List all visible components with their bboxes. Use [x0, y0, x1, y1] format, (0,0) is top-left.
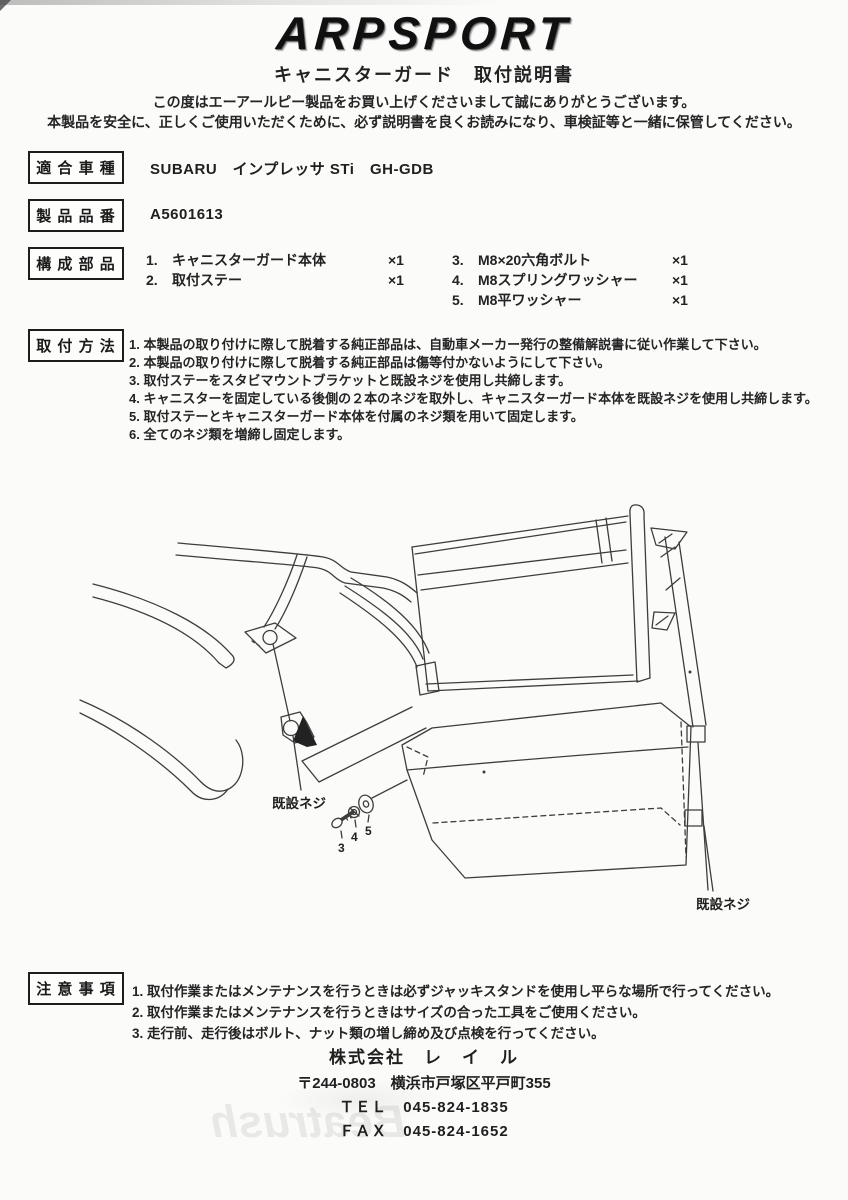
- component-item: 1. キャニスターガード本体 ×1: [146, 250, 404, 270]
- mount-to-stay-line: [273, 644, 290, 721]
- diagram-part-number-5: 5: [365, 824, 372, 838]
- caution-item: 3. 走行前、走行後はボルト、ナット類の増し締め及び点検を行ってください。: [132, 1023, 842, 1044]
- canister-right-strip-top: [630, 505, 644, 516]
- company-name: 株式会社 レ イ ル: [0, 1043, 848, 1068]
- component-name: M8×20六角ボルト: [478, 250, 672, 270]
- subframe-rail-line: [178, 543, 417, 593]
- component-item: 4. M8スプリングワッシャー ×1: [452, 270, 688, 290]
- stabi-mount-bracket: [245, 623, 296, 653]
- installation-step: 6. 全てのネジ類を増締し固定します。: [129, 426, 844, 444]
- diagram-part-number-4: 4: [351, 830, 358, 844]
- installation-step: 2. 本製品の取り付けに際して脱着する純正部品は傷等付かないようにして下さい。: [129, 354, 844, 372]
- stabi-mount-dash: [252, 641, 261, 647]
- section-label-part-number: 製 品 品 番: [28, 199, 124, 232]
- brand-logo: ARPSPORT: [0, 6, 848, 60]
- document-title: キャニスターガード 取付説明書: [0, 61, 848, 87]
- sway-bar-tube: [93, 597, 219, 663]
- vehicle-value: SUBARU インプレッサ STi GH-GDB: [150, 158, 434, 179]
- caution-item: 1. 取付作業またはメンテナンスを行うときは必ずジャッキスタンドを使用し平らな場…: [132, 981, 842, 1002]
- greeting-text: この度はエーアールピー製品をお買い上げくださいまして誠にありがとうございます。 …: [0, 92, 848, 132]
- canister-left-edge: [412, 547, 428, 691]
- section-label-cautions: 注 意 事 項: [28, 972, 124, 1005]
- sway-bar-tube-end: [219, 654, 234, 668]
- guard-dashed-line: [433, 808, 680, 825]
- greeting-line-2: 本製品を安全に、正しくご使用いただくために、必ず説明書を良くお読みになり、車検証…: [0, 112, 848, 132]
- part-number-value: A5601613: [150, 206, 223, 223]
- section-label-vehicle: 適 合 車 種: [28, 151, 124, 184]
- component-no: 2.: [146, 270, 172, 290]
- component-no: 4.: [452, 270, 478, 290]
- component-name: キャニスターガード本体: [172, 250, 388, 270]
- installation-step: 4. キャニスターを固定している後側の２本のネジを取外し、キャニスターガード本体…: [129, 390, 844, 408]
- number-tick: [368, 815, 369, 822]
- bracket-long-line: [665, 537, 693, 727]
- leader-line-left: [293, 736, 301, 790]
- hose-line: [340, 593, 417, 667]
- component-qty: ×1: [388, 250, 404, 270]
- canister-right-strip: [637, 678, 650, 682]
- hardware-leader-line: [372, 780, 407, 798]
- component-item: 3. M8×20六角ボルト ×1: [452, 250, 688, 270]
- caution-items: 1. 取付作業またはメンテナンスを行うときは必ずジャッキスタンドを使用し平らな場…: [132, 981, 842, 1044]
- component-qty: ×1: [672, 250, 688, 270]
- scan-edge-shadow: [0, 0, 500, 5]
- diagram-label-existing-screw-left: 既設ネジ: [272, 795, 326, 811]
- stay-bracket-wedge: [293, 716, 317, 747]
- number-tick: [341, 831, 342, 838]
- component-qty: ×1: [672, 270, 688, 290]
- canister-ear-top: [651, 528, 687, 549]
- caution-item: 2. 取付作業またはメンテナンスを行うときはサイズの合った工具をご使用ください。: [132, 1002, 842, 1023]
- number-tick: [355, 820, 356, 827]
- stray-dot: [483, 771, 486, 774]
- components-list-right: 3. M8×20六角ボルト ×1 4. M8スプリングワッシャー ×1 5. M…: [452, 250, 688, 310]
- component-no: 3.: [452, 250, 478, 270]
- components-list-left: 1. キャニスターガード本体 ×1 2. 取付ステー ×1: [146, 250, 404, 290]
- component-qty: ×1: [672, 290, 688, 310]
- section-label-installation: 取 付 方 法: [28, 329, 124, 362]
- greeting-line-1: この度はエーアールピー製品をお買い上げくださいまして誠にありがとうございます。: [0, 92, 848, 112]
- sway-bar-tube: [80, 700, 243, 791]
- flat-washer-hole: [363, 800, 370, 808]
- guard-outline: [402, 703, 691, 878]
- frame-branch-line: [275, 557, 307, 629]
- component-name: M8平ワッシャー: [478, 290, 672, 310]
- guard-dashed-line: [681, 722, 686, 857]
- component-qty: ×1: [388, 270, 404, 290]
- canister-band: [418, 550, 626, 575]
- frame-branch-line: [264, 555, 297, 627]
- component-no: 1.: [146, 250, 172, 270]
- bleed-through-watermark: Beatrush: [118, 1096, 498, 1148]
- guard-screw-tab: [687, 726, 705, 742]
- guard-fold-line: [407, 747, 688, 770]
- stabi-mount-hole: [263, 631, 277, 645]
- subframe-rail-line: [176, 555, 411, 602]
- component-name: 取付ステー: [172, 270, 388, 290]
- canister-band: [421, 563, 628, 590]
- canister-ear-hatch: [656, 616, 668, 625]
- guard-dashed-line: [407, 747, 428, 777]
- installation-step: 5. 取付ステーとキャニスターガード本体を付属のネジ類を用いて固定します。: [129, 408, 844, 426]
- component-no: 5.: [452, 290, 478, 310]
- installation-steps: 1. 本製品の取り付けに際して脱着する純正部品は、自動車メーカー発行の整備解説書…: [129, 336, 844, 444]
- canister-right-strip: [630, 514, 637, 682]
- installation-step: 3. 取付ステーをスタビマウントブラケットと既設ネジを使用し共締します。: [129, 372, 844, 390]
- hose-line: [345, 586, 423, 659]
- component-name: M8スプリングワッシャー: [478, 270, 672, 290]
- canister-ear-mid: [652, 612, 675, 630]
- installation-step: 1. 本製品の取り付けに際して脱着する純正部品は、自動車メーカー発行の整備解説書…: [129, 336, 844, 354]
- section-label-components: 構 成 部 品: [28, 247, 124, 280]
- canister-top-edge-inner: [415, 522, 626, 554]
- bracket-long-line: [679, 542, 706, 725]
- diagram-label-existing-screw-right: 既設ネジ: [696, 896, 750, 912]
- installation-diagram: 既設ネジ 既設ネジ 3 4 5: [60, 460, 780, 960]
- component-item: 2. 取付ステー ×1: [146, 270, 404, 290]
- stray-dot: [689, 671, 692, 674]
- canister-right-strip: [644, 516, 650, 678]
- sway-bar-tube: [93, 584, 231, 654]
- leader-line-right: [698, 743, 708, 890]
- component-item: 5. M8平ワッシャー ×1: [452, 290, 688, 310]
- diagram-part-number-3: 3: [338, 841, 345, 855]
